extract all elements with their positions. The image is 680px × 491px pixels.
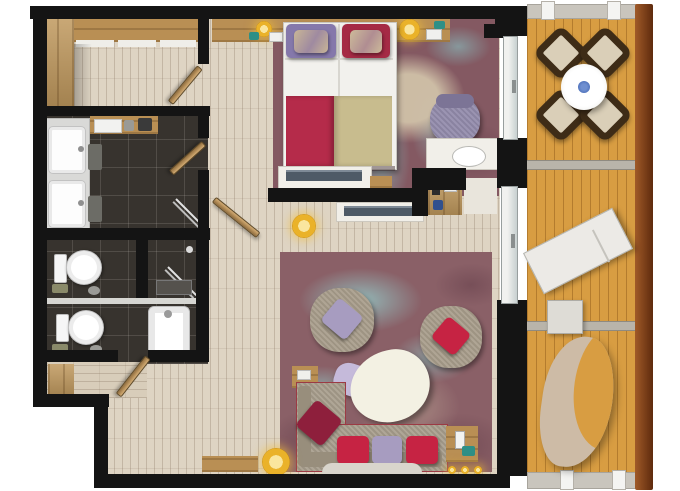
blanket-khaki <box>334 96 392 166</box>
bedroom-tv <box>286 170 362 181</box>
wall-wet-right-lower <box>196 240 209 352</box>
slider-handle-icon <box>512 80 516 93</box>
spotlight <box>461 466 469 474</box>
wall-balcony-low <box>497 300 527 476</box>
phone-item <box>426 29 442 40</box>
bin <box>88 286 100 295</box>
balcony-post <box>541 1 555 20</box>
minibar-item <box>433 200 443 210</box>
bedside-lamp-right <box>399 19 420 40</box>
blanket-red <box>286 96 334 166</box>
wall-bottom <box>94 474 510 488</box>
spotlight <box>448 466 456 474</box>
balcony-post <box>607 1 621 20</box>
wall-bathroom-bottom <box>42 228 210 240</box>
deco-teal-item <box>249 32 259 40</box>
pillow-crimson-inner <box>350 30 382 53</box>
shower-tray <box>156 280 192 295</box>
wardrobe-front-edge <box>118 40 156 47</box>
balcony-side-table <box>547 300 583 334</box>
balcony-threshold <box>464 178 497 214</box>
bedroom-armchair-back <box>436 94 474 108</box>
pillow-purple-inner <box>294 30 328 53</box>
toilet <box>68 310 104 345</box>
balcony-divider <box>527 160 635 170</box>
bath-stool <box>88 196 102 222</box>
wall-closet-right <box>198 18 209 64</box>
living-tv <box>344 206 414 216</box>
wall-minibar-side <box>412 168 428 216</box>
wet-partition <box>46 298 196 304</box>
wood-bench <box>202 456 258 472</box>
toilet <box>66 250 102 285</box>
balcony-post <box>560 470 574 490</box>
spotlight <box>474 466 482 474</box>
living-floor-lamp <box>262 448 290 476</box>
wall-left <box>33 6 47 398</box>
sofa-cushion-lavender <box>372 436 402 464</box>
bathtub-faucet-icon <box>164 310 172 318</box>
hall-floor-lamp <box>292 214 316 238</box>
balcony-railing-right <box>635 4 653 490</box>
side-table-item <box>297 370 311 380</box>
console-side-wood <box>370 176 392 188</box>
shower-head-icon <box>186 246 193 253</box>
towel-stack <box>52 284 68 293</box>
wall-bathroom-right-a <box>198 106 209 138</box>
towel-stack <box>94 119 122 133</box>
entry-wood-panel <box>48 364 74 396</box>
faucet-icon <box>78 200 84 206</box>
wall-wc-bottom-b <box>148 350 209 362</box>
wall-balcony-mid <box>497 138 527 188</box>
closet-floor-shadow <box>74 44 92 106</box>
bed-fold-line <box>285 58 393 60</box>
toiletry-item <box>138 118 152 131</box>
blue-bowl <box>578 81 590 93</box>
deco-teal-item <box>434 21 445 29</box>
phone-item <box>269 32 283 42</box>
wall-wc-divider <box>136 240 148 298</box>
wall-top <box>30 6 510 19</box>
faucet-icon <box>78 146 84 152</box>
sofa-cushion-red <box>406 436 438 464</box>
toiletry-item <box>124 120 134 131</box>
living-balcony-slider <box>501 186 518 304</box>
wall-wc-bottom-a <box>42 350 118 362</box>
floor-plan <box>0 0 680 491</box>
desk-chair <box>452 146 486 167</box>
sofa-cushion-red <box>337 436 369 464</box>
slider-handle-icon <box>511 234 515 248</box>
wardrobe-front-edge <box>160 40 196 47</box>
bed-center-seam <box>338 24 340 96</box>
bath-stool <box>88 144 102 170</box>
balcony-post <box>612 470 626 490</box>
side-table-tray-teal <box>462 446 475 456</box>
exterior-notch <box>0 407 94 491</box>
wall-closet-bathroom <box>42 106 210 116</box>
wall-bedroom-south <box>268 188 418 202</box>
